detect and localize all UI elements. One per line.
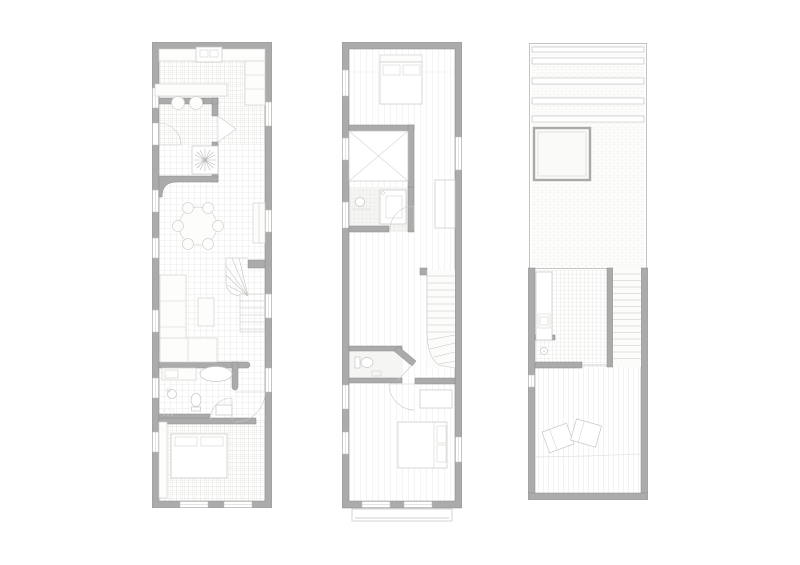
rf-mid-wall — [535, 362, 582, 368]
window — [266, 294, 272, 318]
double-bed — [380, 62, 422, 104]
plant-icon — [194, 149, 216, 171]
ff-landing-wall — [415, 378, 455, 384]
ground-floor-plan — [152, 42, 272, 508]
dining-chair — [213, 221, 224, 232]
window — [404, 502, 432, 508]
coffee-table — [198, 298, 214, 326]
floor-plan-sheet — [0, 0, 800, 565]
double-bed — [171, 434, 227, 478]
washer-unit — [216, 405, 232, 415]
toilet-bowl — [191, 394, 201, 407]
window — [529, 375, 535, 387]
pergola-slat — [532, 98, 644, 104]
ff-wc-bottom-wall — [349, 378, 402, 383]
window — [362, 502, 390, 508]
tall-counter — [245, 61, 265, 105]
window — [266, 102, 272, 126]
gf-bedroom-top-wall — [159, 418, 256, 424]
gf-stair-stub-wall — [248, 260, 265, 268]
wardrobe-strip — [159, 422, 167, 498]
kitchen-island — [155, 84, 227, 96]
rf-bottom-wall — [528, 493, 648, 500]
toilet-tank — [355, 357, 360, 368]
ff-balcony — [352, 509, 452, 521]
bathtub — [200, 367, 232, 382]
ff-bath-right-wall — [408, 187, 414, 232]
ff-stair-stub — [420, 268, 427, 275]
window — [153, 238, 159, 258]
window — [153, 378, 159, 398]
skylight — [534, 128, 590, 180]
pergola-slat — [532, 78, 644, 84]
washbasin — [168, 390, 177, 399]
dining-chair — [183, 203, 194, 214]
window — [153, 310, 159, 332]
pergola-slat — [532, 47, 644, 52]
stair-side-wall — [607, 268, 613, 367]
rf-stair — [607, 268, 641, 367]
drain-dot — [543, 350, 545, 352]
outdoor-counter — [536, 272, 552, 340]
sofa-chaise — [160, 338, 217, 362]
rf-upper-roof — [530, 44, 647, 269]
built-in-wardrobe — [420, 390, 452, 408]
headboard — [380, 55, 422, 62]
gf-entry-opening — [153, 123, 159, 145]
ff-bath-bottom-wall — [349, 226, 389, 232]
dining-chair — [183, 239, 194, 250]
window — [153, 432, 159, 452]
ff-wc-top-wall — [349, 346, 402, 351]
window — [266, 210, 272, 232]
bar-stool — [190, 97, 203, 110]
window — [343, 70, 349, 96]
window — [343, 138, 349, 160]
pergola-slat — [532, 116, 644, 122]
first-floor-plan — [342, 42, 462, 524]
window — [456, 137, 462, 170]
roof-plan — [528, 42, 648, 500]
washbasin — [356, 198, 365, 207]
window — [343, 202, 349, 228]
gf-bath-right-wall — [232, 362, 238, 390]
ff-skylight-shaft — [349, 131, 408, 181]
toilet-base — [192, 407, 201, 411]
juliet-balcony — [352, 509, 452, 521]
ff-shaft-top-wall — [349, 125, 414, 131]
window — [266, 368, 272, 392]
ff-stair — [427, 270, 455, 368]
window — [343, 432, 349, 454]
window — [153, 190, 159, 212]
pergola-slat — [532, 58, 644, 64]
dining-chair — [203, 203, 214, 214]
window — [456, 437, 462, 462]
dining-chair — [173, 221, 184, 232]
window — [224, 502, 252, 508]
bar-stool — [172, 97, 185, 110]
window — [180, 502, 208, 508]
toilet-bowl — [361, 358, 373, 368]
rf-right-wall — [641, 268, 648, 500]
dining-chair — [203, 239, 214, 250]
window — [343, 385, 349, 409]
ff-shaft-right-wall — [408, 125, 414, 187]
